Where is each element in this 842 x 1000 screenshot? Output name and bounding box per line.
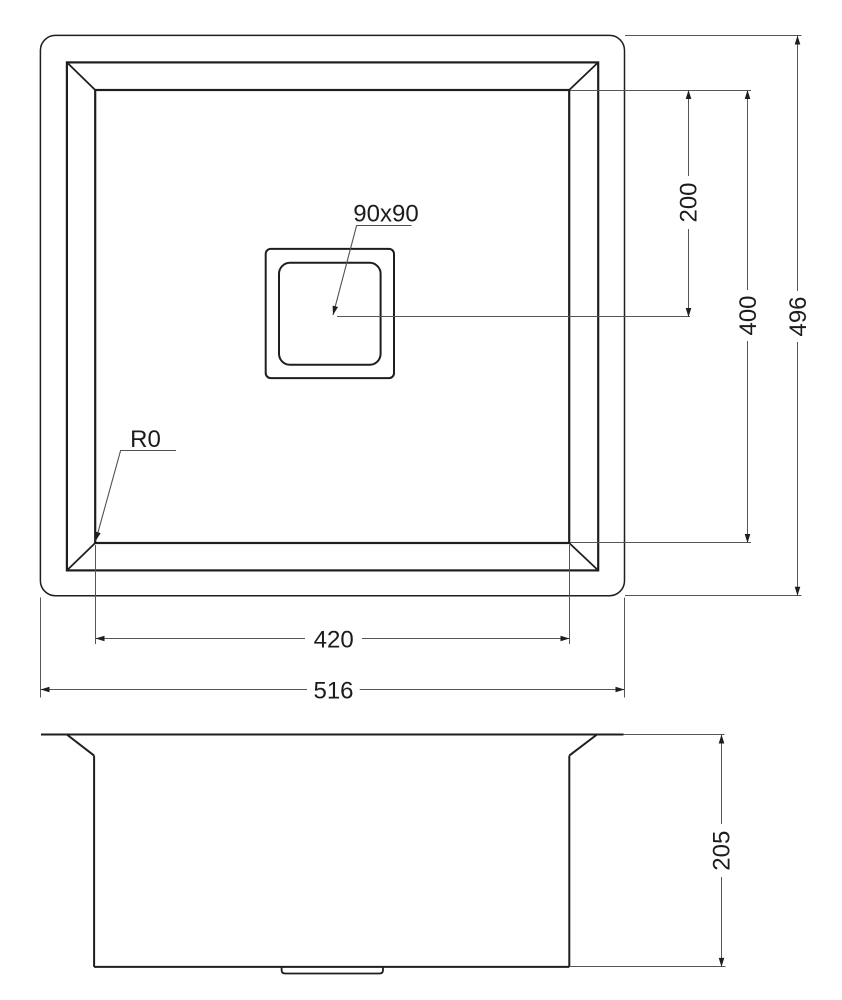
svg-text:R0: R0 bbox=[130, 426, 161, 453]
svg-text:200: 200 bbox=[676, 182, 703, 222]
svg-text:516: 516 bbox=[313, 678, 353, 705]
svg-text:496: 496 bbox=[785, 296, 812, 336]
svg-text:420: 420 bbox=[314, 627, 354, 654]
svg-text:205: 205 bbox=[709, 831, 736, 871]
svg-text:90x90: 90x90 bbox=[353, 200, 418, 227]
svg-text:400: 400 bbox=[735, 295, 762, 335]
